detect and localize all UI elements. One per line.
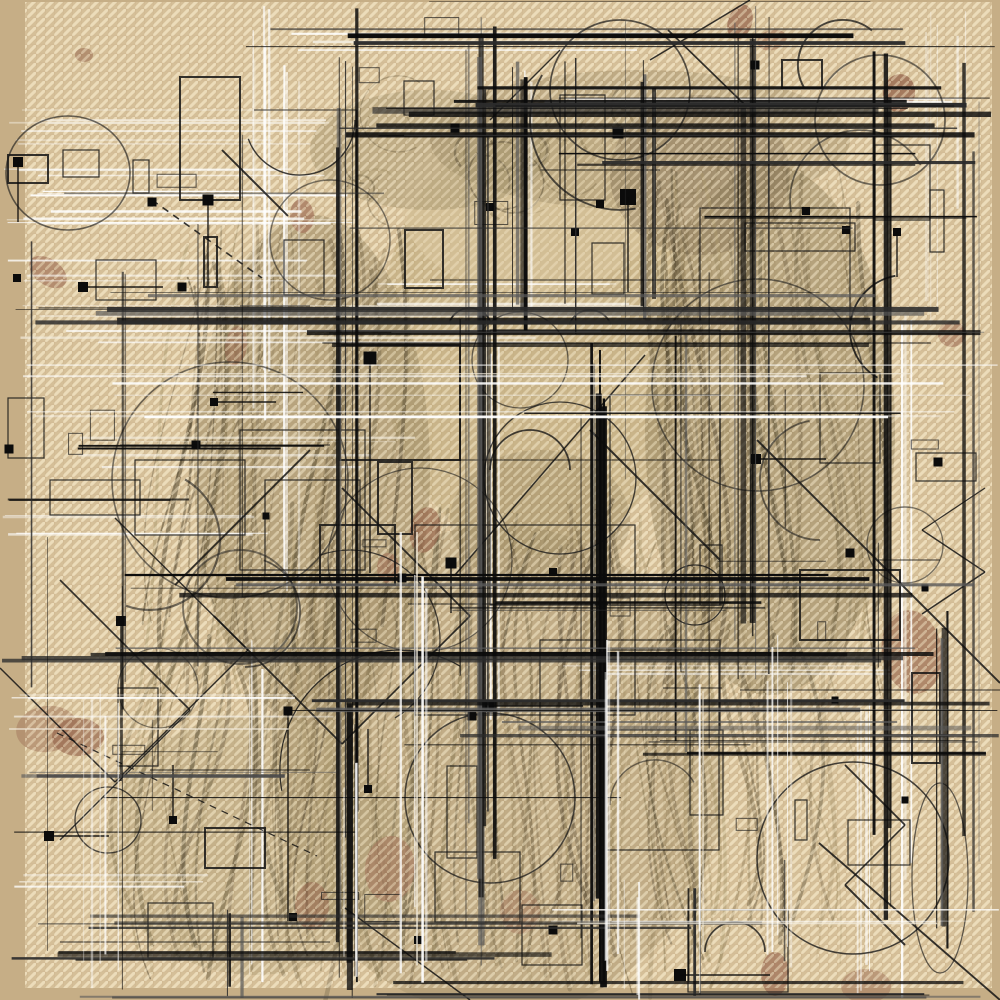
generative-artwork [0, 0, 1000, 1000]
hatch-overlay [25, 2, 992, 988]
artwork-canvas [0, 0, 1000, 1000]
